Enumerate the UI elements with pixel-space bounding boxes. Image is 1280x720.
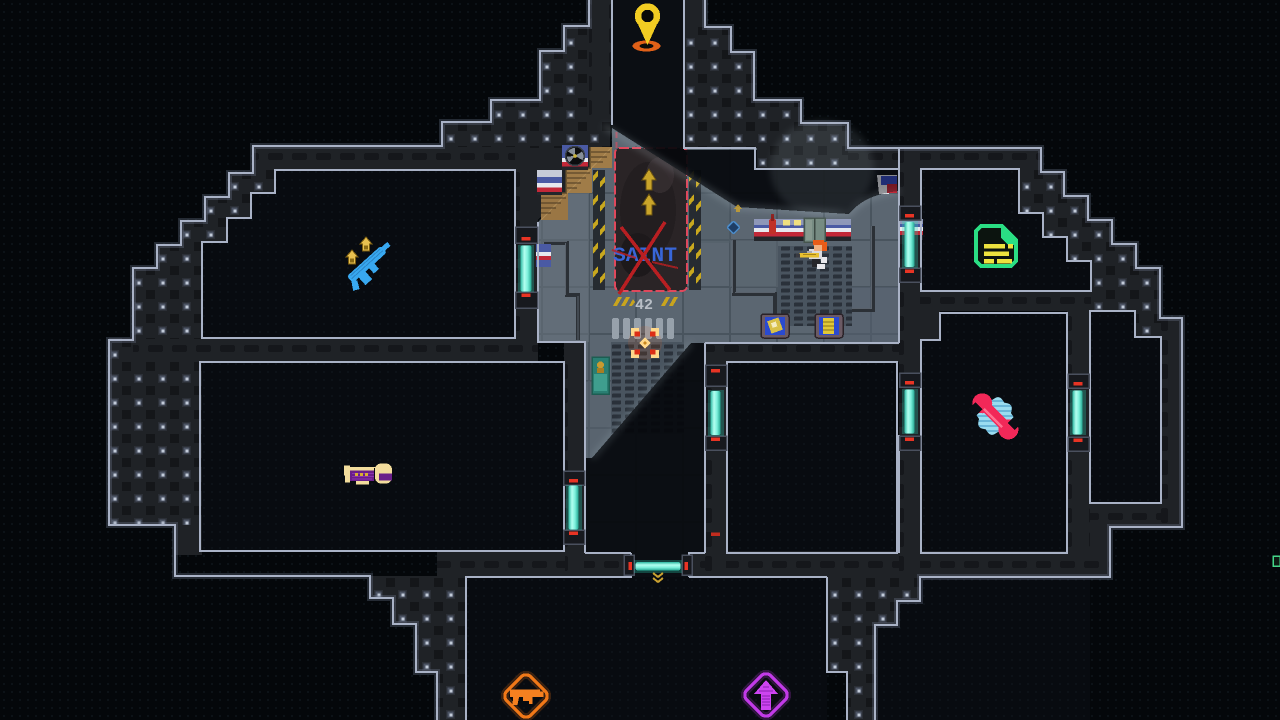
svg-text:42: 42 <box>635 297 653 314</box>
